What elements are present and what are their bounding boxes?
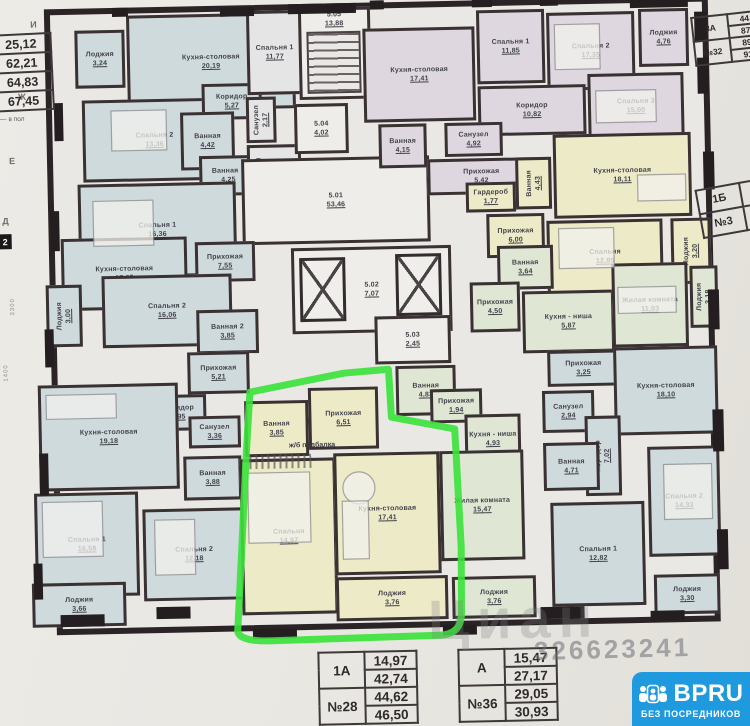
room-area: 3,00 <box>64 302 74 330</box>
room: 5.01 53,46 <box>241 155 431 245</box>
room-name: Кухня - ниша <box>545 313 592 321</box>
room-area: 17,41 <box>390 74 448 84</box>
elevator-shaft <box>299 257 346 322</box>
room-name: Ванная <box>558 458 585 466</box>
room: Кухня-столовая 17,41 <box>333 451 442 575</box>
room-name: Лоджия <box>86 51 114 59</box>
wall-segment <box>33 564 43 600</box>
room-name: Прихожая <box>497 227 533 235</box>
room-name: Жилая комната <box>622 296 678 304</box>
room-name: 5.01 <box>329 192 344 199</box>
room: Санузел 2,17 <box>246 97 277 144</box>
room-name: Кухня-столовая <box>593 167 651 175</box>
room-area: 1,77 <box>474 197 509 207</box>
room-area: 6,00 <box>498 235 534 245</box>
room-area: 5,21 <box>200 372 236 382</box>
room-area: 4,15 <box>389 146 416 156</box>
room-name: 5.04 <box>314 120 329 127</box>
room: Спальня 1 11,85 <box>476 9 546 84</box>
room-area: 3,25 <box>565 368 601 378</box>
room-name: Спальня 3 <box>617 98 655 106</box>
room-name: Ванная <box>512 259 539 267</box>
room-name: Прихожая <box>463 168 499 176</box>
room-area: 19,18 <box>80 437 138 447</box>
room-name: Ванная 1 <box>212 167 245 175</box>
room-name: Кухня-столовая <box>80 428 138 436</box>
room: Ванная 2 3,85 <box>196 309 259 354</box>
wall-segment <box>156 606 190 619</box>
room-name: Ванная <box>525 170 533 197</box>
staircase <box>306 31 361 94</box>
room-name: Лоджия <box>683 237 691 265</box>
logo-tagline: БЕЗ ПОСРЕДНИКОВ <box>641 709 741 719</box>
room-area: 3,20 <box>691 237 701 265</box>
room-area: 15,47 <box>454 505 510 515</box>
room-name: Ванная <box>389 138 416 146</box>
room-area: 4,42 <box>194 141 221 151</box>
room-name: Прихожая <box>207 253 243 261</box>
room: Прихожая 4,50 <box>470 281 521 332</box>
room-name: Лоджия <box>673 586 701 594</box>
wall-segment <box>61 614 105 627</box>
room-name: Лоджия <box>378 590 406 598</box>
wall-segment <box>651 610 685 621</box>
room-area: 11,85 <box>492 46 530 56</box>
room-name: Кухня-столовая <box>358 505 416 513</box>
walls-layer <box>0 0 744 8</box>
room: Ванная 4,43 <box>515 157 552 210</box>
room-name: Кухня-столовая <box>95 265 153 273</box>
people-icon <box>638 683 668 705</box>
room-name: Прихожая <box>565 360 601 368</box>
room: Лоджия 4,76 <box>638 8 689 67</box>
room-area: 7,02 <box>603 440 613 472</box>
room-name: Санузел <box>553 403 583 411</box>
room: 5.04 4,02 <box>294 103 349 154</box>
area-value: 27,17 <box>505 666 557 685</box>
room-area: 13,88 <box>325 19 344 28</box>
room: Прихожая 5,21 <box>187 351 250 394</box>
area-value: 29,05 <box>505 684 557 703</box>
room: Прихожая 6,51 <box>308 386 379 449</box>
note-v-pol: — в пол <box>0 116 25 124</box>
room-area: 17,41 <box>359 513 417 523</box>
room: Санузел 4,92 <box>444 122 503 157</box>
apt-number: №36 <box>459 685 506 722</box>
room-name: Санузел <box>458 131 488 139</box>
wall-segment <box>288 3 356 14</box>
room-name: Гардероб <box>473 189 508 197</box>
room-area: 3,88 <box>199 478 226 488</box>
room-area: 3,66 <box>65 604 93 614</box>
room: Жилая комната 15,47 <box>439 449 525 561</box>
area-value: 42,74 <box>365 669 417 688</box>
room-name: Лоджия <box>649 29 677 37</box>
room-name: Спальня 2 <box>175 546 213 554</box>
room-area: 2,17 <box>261 105 271 135</box>
wall-segment <box>717 529 729 569</box>
room-name: Кухня - ниша <box>469 430 516 438</box>
room-area: 15,00 <box>617 106 655 116</box>
room-name: Лоджия <box>56 302 64 330</box>
dimension-label: 3300 <box>10 298 16 315</box>
room: 5.03 2,45 <box>374 315 451 365</box>
room: Гардероб 1,77 <box>466 182 517 213</box>
room-area: 5,27 <box>216 101 248 111</box>
area-value: 46,50 <box>365 705 417 724</box>
room-area: 14,97 <box>273 536 305 546</box>
apt-type: 1А <box>318 652 365 689</box>
room-name: Спальня <box>589 248 621 256</box>
room-area: 13,36 <box>136 140 174 150</box>
apt-type: А <box>458 649 505 686</box>
room-area: 4,71 <box>558 466 585 476</box>
room-name: Коридор <box>516 102 548 110</box>
room-name: Санузел <box>199 424 229 432</box>
room-area: 7,55 <box>207 261 243 271</box>
room-area: 4,93 <box>469 439 517 449</box>
room-area: 10,82 <box>516 110 548 120</box>
room-name: Спальня 1 <box>138 222 176 230</box>
room-name: Кухня-столовая <box>390 66 448 74</box>
room-name: Спальня 2 <box>148 302 186 310</box>
room-area: 5,87 <box>545 321 593 331</box>
room-area: 4,02 <box>314 128 329 137</box>
wall-segment <box>112 8 128 17</box>
room-area: 3,30 <box>673 594 701 604</box>
axis-letter: Д <box>2 216 9 226</box>
room-name: Спальня 1 <box>492 38 530 46</box>
room-name: Кухня-столовая <box>182 53 240 61</box>
room-name: Спальня 2 <box>135 132 173 140</box>
axis-letter: Е <box>9 156 15 166</box>
wall-segment <box>540 0 558 6</box>
room-name: 5.03 <box>405 331 420 338</box>
spec-table-top-left: 1А 25,12 62,21 №2 64,83 67,45 <box>0 32 55 115</box>
room: Кухня-столовая 18,11 <box>553 132 693 219</box>
room-area: 2,45 <box>406 340 421 349</box>
watermark-id-number: 326623241 <box>534 632 692 667</box>
wall-segment <box>708 289 720 329</box>
wall-segment <box>39 453 49 495</box>
room-name: Прихожая <box>200 364 236 372</box>
wall-segment <box>630 0 688 8</box>
room: Кухня - ниша 5,87 <box>522 290 615 354</box>
spec-table-top-right: 3А 44, 87, №32 89, 91, <box>690 9 750 67</box>
room-name: Ванная <box>194 133 221 141</box>
area-value: 67,45 <box>0 90 54 112</box>
room-area: 4,43 <box>533 170 543 197</box>
dimension-label: 1400 <box>3 364 9 381</box>
room-area: 18,11 <box>594 175 652 185</box>
area-value: 30,93 <box>505 702 557 721</box>
room-area: 20,19 <box>182 61 240 71</box>
room-area: 7,07 <box>365 289 380 298</box>
room-name: Прихожая <box>325 410 361 418</box>
room: Кухня-столовая 17,41 <box>362 26 476 122</box>
room-area: 12,18 <box>175 554 213 564</box>
room-name: Ванная <box>263 420 290 428</box>
wall-segment <box>50 211 60 251</box>
logo-brand-text: BPRU <box>673 680 743 708</box>
wall-segment <box>220 7 254 17</box>
room-name: Лоджия <box>65 596 93 604</box>
room-name: Кухня-столовая <box>637 382 695 390</box>
room-area: 3,64 <box>512 267 539 277</box>
wall-segment <box>45 329 55 367</box>
room-name: Коридор <box>216 93 248 101</box>
axis-letter: И <box>30 20 37 30</box>
room: Кухня-столовая 18,10 <box>613 345 719 435</box>
room-name: Санузел <box>253 105 261 135</box>
room-area: 3,85 <box>211 331 244 341</box>
room-area: 4,50 <box>477 307 513 317</box>
wall-segment <box>712 409 724 451</box>
room-name: Прихожая <box>438 397 474 405</box>
room-name: Прихожая <box>477 299 513 307</box>
room: Спальня 2 12,18 <box>142 507 246 601</box>
room: Прихожая 3,25 <box>547 349 620 386</box>
wall-segment <box>703 151 715 189</box>
room-area: 16,06 <box>148 310 186 320</box>
wall-segment <box>253 628 297 639</box>
room: Спальня 3 15,00 <box>587 72 684 140</box>
room: Спальня 2 14,33 <box>647 445 721 556</box>
room: Лоджия 3,24 <box>74 30 125 89</box>
room: Ванная 4,71 <box>543 442 600 491</box>
room-area: 2,94 <box>553 411 583 421</box>
room-name: Спальня <box>273 528 305 536</box>
room-area: 17,35 <box>572 51 610 61</box>
room-area: 3,85 <box>263 428 290 438</box>
wall-segment <box>54 103 64 141</box>
room: Лоджия 3,30 <box>654 573 721 614</box>
room: Спальня 1 11,77 <box>246 10 304 95</box>
room-area: 6,51 <box>325 418 361 428</box>
room-name: Жилая комната <box>454 497 510 505</box>
room-name: Спальня 1 <box>579 545 617 553</box>
room: Ванная 4,15 <box>378 123 427 168</box>
room-name: Лоджия <box>696 283 704 311</box>
room: Кухня-столовая 19,18 <box>38 383 180 492</box>
area-value: 14,97 <box>364 651 416 670</box>
room-name: Спальня 1 <box>68 536 106 544</box>
spec-table-apt-1a: 1А 14,97 42,74 №28 44,62 46,50 <box>317 650 419 726</box>
room: Спальня 14,97 <box>239 457 338 615</box>
room-name: Ванная 2 <box>211 323 244 331</box>
apt-number: №28 <box>319 688 366 725</box>
bpru-logo: BPRU БЕЗ ПОСРЕДНИКОВ <box>632 672 750 726</box>
area-value: 44,62 <box>365 687 417 706</box>
room-name: Спальня 2 <box>572 42 610 50</box>
room: Жилая комната 11,03 <box>611 262 689 348</box>
room-area: 16,58 <box>68 544 106 554</box>
room-area: 3,76 <box>378 598 406 608</box>
room-area: 3,36 <box>200 432 230 442</box>
floorplan-photo: Лоджия 3,24 Кухня-столовая 20,19 Спальня… <box>0 0 750 726</box>
concrete-beam <box>249 454 311 469</box>
room: Санузел 3,36 <box>188 415 241 448</box>
room-area: 12,82 <box>579 554 617 564</box>
room-name: 5.02 <box>364 281 379 288</box>
room-name: Спальня 2 <box>665 493 703 501</box>
room: Ванная 3,88 <box>183 455 242 500</box>
wall-segment <box>370 0 384 9</box>
room-area: 3,24 <box>86 59 114 69</box>
room-area: 11,77 <box>256 52 294 62</box>
elevator-shaft <box>395 253 442 316</box>
room-area: 14,33 <box>665 501 703 511</box>
room-area: 11,03 <box>622 304 678 314</box>
room-area: 4,92 <box>459 139 489 149</box>
beam-note: ж/б подбалка <box>289 441 335 449</box>
axis-number-box: 2 <box>0 234 12 249</box>
room-name: Ванная <box>199 470 226 478</box>
room-area: 53,46 <box>327 200 346 209</box>
room-area: 18,10 <box>637 390 695 400</box>
room-name: Спальня 1 <box>256 44 294 52</box>
room-area: 4,76 <box>650 37 678 47</box>
wall-segment <box>472 0 492 7</box>
plan-sheet: Лоджия 3,24 Кухня-столовая 20,19 Спальня… <box>0 0 750 726</box>
apt-number: №32 <box>694 38 732 66</box>
